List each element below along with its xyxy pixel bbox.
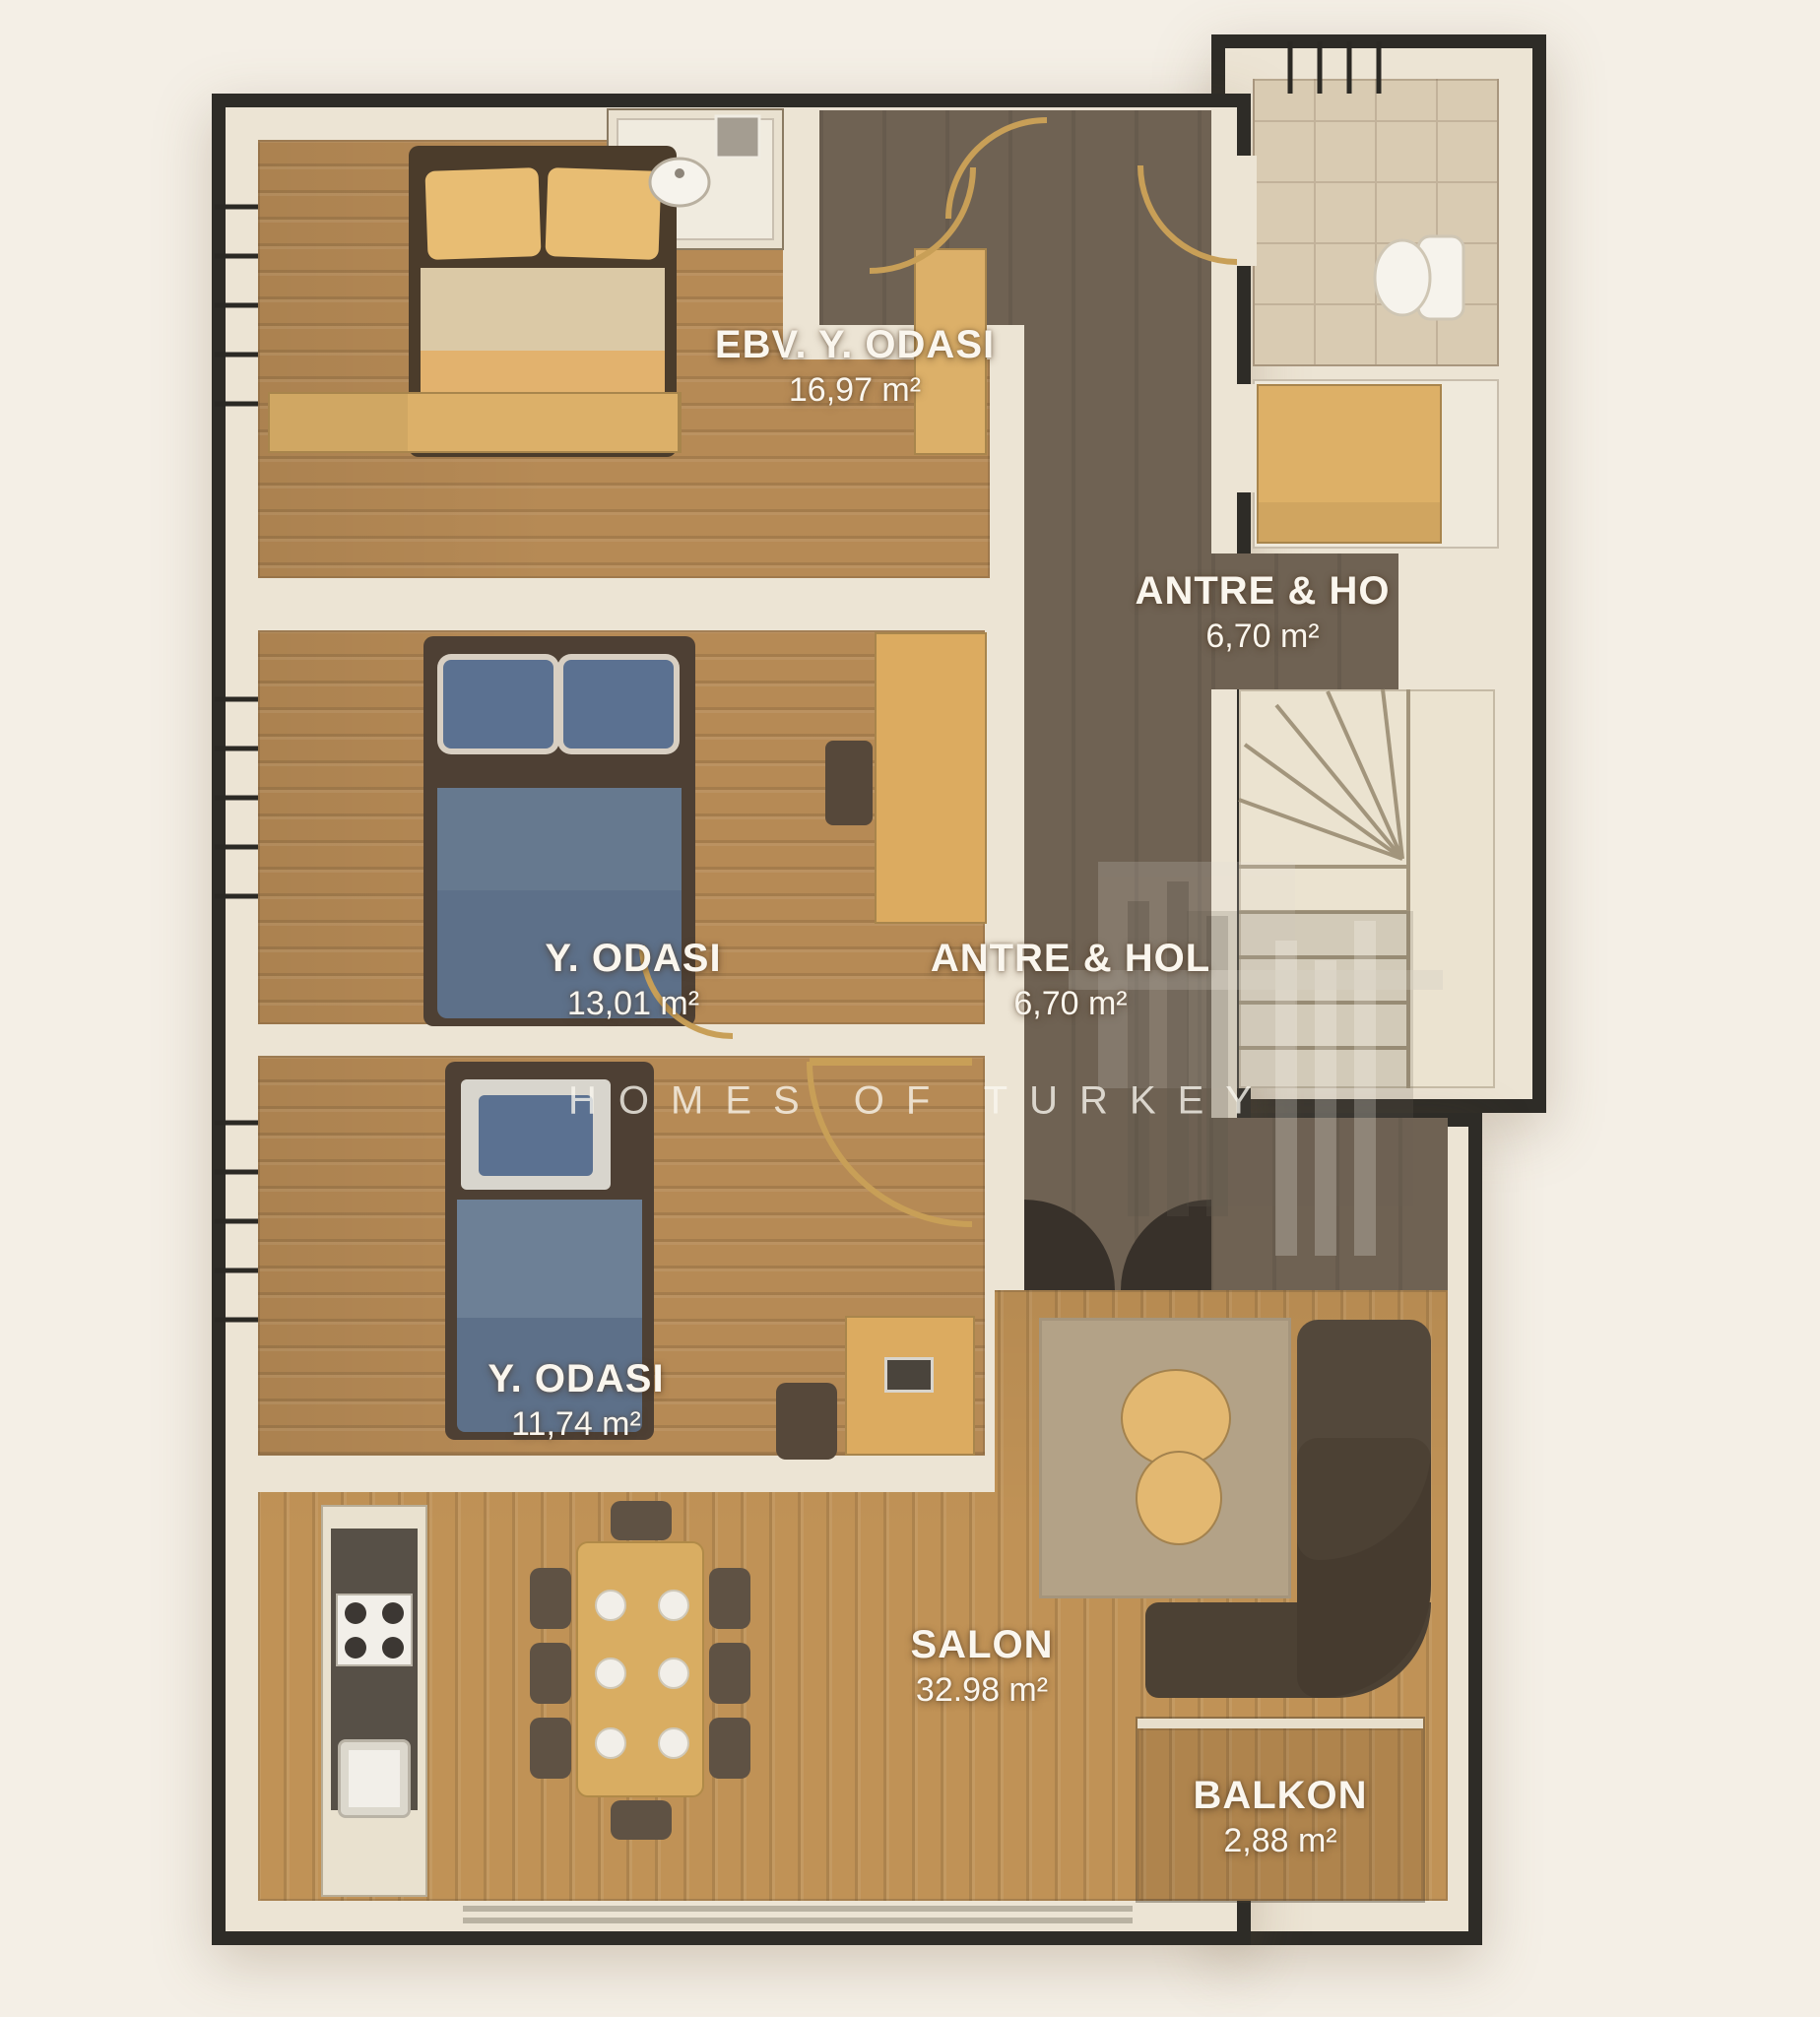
room-area: 11,74 m² (511, 1405, 641, 1444)
dining-chair (709, 1643, 750, 1704)
room-area: 6,70 m² (1205, 618, 1319, 656)
dining-plate (658, 1590, 689, 1621)
room-area: 6,70 m² (1013, 985, 1127, 1023)
label-bedroom2: Y. ODASI 13,01 m² (545, 937, 721, 1023)
room-area: 2,88 m² (1223, 1822, 1336, 1860)
master-pillow-left (424, 167, 541, 260)
dining-plate (595, 1658, 626, 1689)
entry-cabinet (1257, 384, 1442, 544)
label-antre-hol: ANTRE & HOL 6,70 m² (931, 937, 1210, 1023)
dining-chair (709, 1718, 750, 1779)
stove-burner-4 (382, 1637, 404, 1659)
coffee-table-small (1136, 1451, 1222, 1545)
dining-chair (530, 1568, 571, 1629)
brand-watermark: HOMES OF TURKEY (568, 1079, 1273, 1124)
room-area: 16,97 m² (789, 371, 921, 410)
bedroom3-bed-blanket (457, 1200, 642, 1322)
room-area: 32.98 m² (916, 1671, 1048, 1710)
room-name: ANTRE & HOL (931, 937, 1210, 981)
dining-plate (658, 1658, 689, 1689)
bedroom2-desk (875, 632, 987, 924)
floor-plan-canvas: HOMES OF TURKEY EBV. Y. ODASI 16,97 m² A… (0, 0, 1820, 2017)
staircase (1239, 689, 1495, 1088)
label-master-bedroom: EBV. Y. ODASI 16,97 m² (715, 323, 995, 410)
dining-chair (530, 1718, 571, 1779)
room-bathroom-floor (1253, 79, 1499, 366)
dining-chair (611, 1501, 672, 1540)
dining-chair (709, 1568, 750, 1629)
room-name: EBV. Y. ODASI (715, 323, 995, 367)
room-name: Y. ODASI (545, 937, 721, 981)
label-antre-upper: ANTRE & HO 6,70 m² (1136, 569, 1391, 656)
room-hallway-lower-floor (1209, 1118, 1448, 1290)
stove-burner-3 (345, 1637, 366, 1659)
bedroom2-pillow-right (563, 660, 674, 748)
label-balcony: BALKON 2,88 m² (1193, 1774, 1367, 1860)
master-pillow-right (545, 167, 661, 260)
bedroom2-bed-blanket (437, 788, 682, 894)
room-name: SALON (911, 1623, 1054, 1667)
dining-chair (611, 1800, 672, 1840)
room-name: ANTRE & HO (1136, 569, 1391, 614)
label-bedroom3: Y. ODASI 11,74 m² (487, 1357, 664, 1444)
stove-burner-1 (345, 1602, 366, 1624)
dining-plate (595, 1590, 626, 1621)
dining-plate (595, 1727, 626, 1759)
bedroom2-pillow-left (443, 660, 553, 748)
stove-burner-2 (382, 1602, 404, 1624)
label-salon: SALON 32.98 m² (911, 1623, 1054, 1710)
bedroom3-desk-chair (776, 1383, 837, 1460)
master-dresser (268, 392, 682, 453)
master-bed-sheet (421, 268, 665, 355)
sofa-vertical-arm (1297, 1320, 1431, 1698)
bedroom2-desk-chair (825, 741, 873, 825)
dining-plate (658, 1727, 689, 1759)
room-name: Y. ODASI (487, 1357, 664, 1401)
room-name: BALKON (1193, 1774, 1367, 1818)
bedroom3-laptop (884, 1357, 934, 1393)
kitchen-sink (338, 1739, 411, 1818)
dining-chair (530, 1643, 571, 1704)
room-area: 13,01 m² (567, 985, 699, 1023)
